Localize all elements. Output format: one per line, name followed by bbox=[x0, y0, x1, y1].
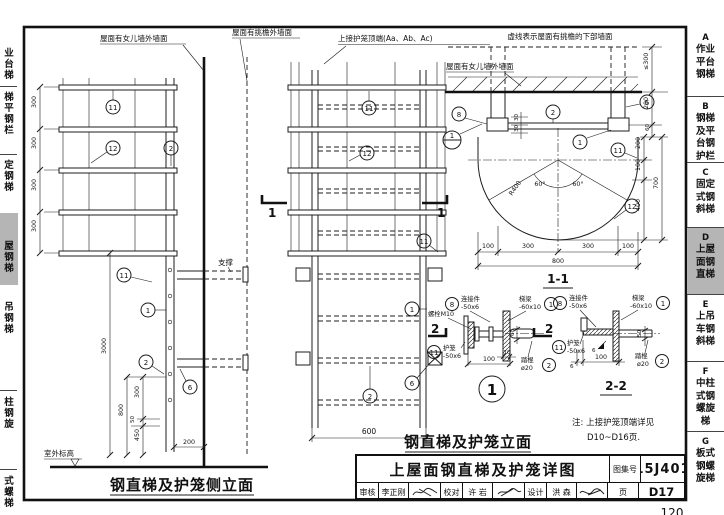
drawing-title: 上屋面钢直梯及护笼详图 bbox=[357, 456, 610, 482]
callout-11: 11 bbox=[365, 105, 374, 113]
cage-label: 护笼 bbox=[567, 338, 580, 347]
right-tab-strip: A 作业 平台 钢梯 B 钢梯 及平 台钢 护栏 C 固定 式钢 斜梯 D 上屋… bbox=[687, 28, 724, 498]
dim-100: 100 bbox=[622, 243, 634, 250]
rung-size: ø20 bbox=[637, 361, 649, 368]
drawing-sheet: 300 300 300 300 3000 800 300 50 450 200 … bbox=[0, 0, 724, 515]
callout-2: 2 bbox=[169, 145, 173, 153]
dim-50: 50 bbox=[637, 329, 643, 337]
dim-60: 60 bbox=[510, 328, 516, 336]
dim-10: 10 bbox=[503, 350, 511, 356]
proof-signature bbox=[493, 483, 525, 501]
support-label: 支撑 bbox=[218, 257, 233, 267]
proof-name: 许 岩 bbox=[463, 483, 493, 501]
design-signature bbox=[577, 483, 608, 501]
tab-label: 板式 钢螺 旋梯 bbox=[687, 448, 724, 486]
callout-11: 11 bbox=[555, 344, 564, 352]
dim-300: 300 bbox=[31, 96, 38, 108]
radius-r400: R400 bbox=[508, 180, 523, 197]
callout-1: 1 bbox=[661, 300, 665, 308]
tab-b-ladder-railing[interactable]: B 钢梯 及平 台钢 护栏 bbox=[687, 97, 724, 163]
cage-size: -50x6 bbox=[567, 348, 585, 355]
note-line-2: D10~D16页. bbox=[587, 433, 640, 443]
callout-1: 1 bbox=[146, 307, 150, 315]
dim-400: 400 bbox=[635, 199, 642, 211]
left-tab-g[interactable]: 式 螺 梯 bbox=[1, 476, 17, 509]
callout-12: 12 bbox=[109, 145, 118, 153]
dim-300: 300 bbox=[522, 243, 534, 250]
beam-label: 梯梁 bbox=[632, 293, 645, 302]
border-frame bbox=[24, 27, 686, 500]
callout-bubbles: 11 12 11 1 2 6 bbox=[349, 91, 438, 403]
tab-letter: G bbox=[687, 437, 724, 448]
parapet-wall-label: 屋面有女儿墙外墙面 bbox=[446, 61, 514, 71]
height-dims: 3000 800 300 50 450 200 bbox=[101, 250, 207, 458]
dim-30: 30 bbox=[514, 124, 520, 132]
dashed-wall-note: 虚线表示屋面有挑檐的下部墙面 bbox=[508, 31, 613, 41]
plan-right-dims: ≤300 200 60 200 100 400 700 bbox=[560, 44, 668, 243]
dim-450: 450 bbox=[134, 429, 141, 441]
callout-11: 11 bbox=[430, 349, 439, 357]
dim-100: 100 bbox=[635, 159, 642, 171]
connector-label: 连接件 bbox=[461, 294, 480, 303]
left-tab-d[interactable]: 屋 钢 梯 bbox=[1, 241, 17, 274]
detail-2-2-view: 6 8 连接件 -50x6 梯梁 -60x10 1 11 护笼 -50x6 踏棍… bbox=[553, 293, 670, 395]
angle-60: 60° bbox=[572, 180, 583, 188]
proof-label: 校对 bbox=[441, 483, 463, 501]
beam-size: -60x10 bbox=[630, 303, 652, 310]
tab-label: 上屋 面钢 直梯 bbox=[687, 244, 724, 282]
design-name: 洪 森 bbox=[547, 483, 577, 501]
support-bracket bbox=[177, 267, 248, 370]
signature-icon bbox=[411, 486, 439, 498]
dim-le300: ≤300 bbox=[643, 53, 650, 70]
dim-300: 300 bbox=[31, 220, 38, 232]
dim-700: 700 bbox=[653, 177, 660, 189]
dim-100: 100 bbox=[483, 356, 495, 363]
dim-30: 30 bbox=[514, 113, 520, 121]
tab-letter: D bbox=[687, 233, 724, 244]
section-mark-label: 2 bbox=[431, 322, 439, 336]
tab-label: 上吊 车钢 斜梯 bbox=[687, 311, 724, 349]
rung-label: 踏棍 bbox=[521, 355, 534, 364]
check-signature bbox=[409, 483, 441, 501]
section-mark-label: 1 bbox=[437, 206, 445, 220]
callout-2: 2 bbox=[368, 393, 372, 401]
drawing-canvas: 300 300 300 300 3000 800 300 50 450 200 … bbox=[0, 0, 724, 515]
tab-letter: B bbox=[687, 102, 724, 113]
dim-200: 200 bbox=[635, 137, 642, 149]
atlas-number-label: 图集号 bbox=[610, 456, 641, 482]
dim-300: 300 bbox=[582, 243, 594, 250]
callout-2: 2 bbox=[547, 362, 551, 370]
connector-size: -50x6 bbox=[461, 304, 479, 311]
tab-letter: E bbox=[687, 300, 724, 311]
detail-1-reference: 1 bbox=[443, 124, 482, 149]
level-triangle-icon bbox=[71, 459, 79, 466]
callout-1: 1 bbox=[549, 301, 553, 309]
callout-2: 2 bbox=[551, 109, 555, 117]
callout-11: 11 bbox=[120, 272, 129, 280]
callout-11: 11 bbox=[109, 104, 118, 112]
tab-label: 中柱 式钢 螺旋 梯 bbox=[687, 378, 724, 428]
tab-c-fixed-steel-stair[interactable]: C 固定 式钢 斜梯 bbox=[687, 163, 724, 228]
wall-hatch bbox=[445, 77, 642, 92]
beam-offset-dims: 30 30 bbox=[511, 112, 528, 139]
dim-300: 300 bbox=[31, 137, 38, 149]
callout-2: 2 bbox=[660, 358, 664, 366]
design-label: 设计 bbox=[525, 483, 547, 501]
tab-label: 钢梯 及平 台钢 护栏 bbox=[687, 113, 724, 163]
side-elevation-title: 钢直梯及护笼侧立面 bbox=[110, 476, 254, 494]
callout-8: 8 bbox=[558, 300, 562, 308]
left-tab-a[interactable]: 业 台 梯 bbox=[1, 48, 17, 81]
left-tab-strip: 业 台 梯 梯 平 钢 栏 定 钢 梯 屋 钢 梯 吊 钢 梯 柱 钢 旋 式 … bbox=[0, 0, 18, 515]
section-mark-1: 1 1 bbox=[262, 195, 447, 220]
detail-1-number: 1 bbox=[487, 381, 497, 399]
tab-e-crane-steel-stair[interactable]: E 上吊 车钢 斜梯 bbox=[687, 295, 724, 362]
dim-50: 50 bbox=[130, 415, 136, 423]
page-number-value: D17 bbox=[639, 483, 684, 501]
page-label: 页 bbox=[608, 483, 639, 501]
hoop-spacing-dims: 300 300 300 300 bbox=[31, 84, 59, 256]
callout-2: 2 bbox=[144, 359, 148, 367]
rung-size: ø20 bbox=[521, 365, 533, 372]
tab-label: 作业 平台 钢梯 bbox=[687, 44, 724, 82]
dim-3000: 3000 bbox=[101, 338, 108, 354]
tab-label: 固定 式钢 斜梯 bbox=[687, 179, 724, 217]
dim-800: 800 bbox=[118, 404, 125, 416]
detail-2-2-title: 2-2 bbox=[605, 379, 627, 393]
callout-6: 6 bbox=[410, 380, 415, 388]
dim-200: 200 bbox=[183, 439, 195, 446]
dim-6: 6 bbox=[570, 364, 574, 370]
cage-size: -50x6 bbox=[443, 353, 461, 360]
signature-icon bbox=[578, 486, 606, 498]
outdoor-level-label: 室外标高 bbox=[44, 448, 74, 458]
left-tab-f[interactable]: 柱 钢 旋 bbox=[1, 397, 17, 430]
plan-view-1-1: 虚线表示屋面有挑檐的下部墙面 屋面有女儿墙外墙面 30 30 bbox=[443, 31, 668, 288]
callout-11: 11 bbox=[614, 147, 623, 155]
beam-label: 梯梁 bbox=[519, 294, 532, 303]
cage-top-label: 上接护笼顶端(Aa、Ab、Ac) bbox=[338, 33, 433, 43]
detail-1-view: 2 2 螺栓M10 8 连接件 -50x6 梯梁 -60x10 1 11 护笼 … bbox=[428, 294, 558, 402]
plan-title: 1-1 bbox=[547, 272, 569, 286]
dim-200: 200 bbox=[643, 97, 650, 109]
beam-size: -60x10 bbox=[519, 304, 541, 311]
tab-f-center-column-spiral[interactable]: F 中柱 式钢 螺旋 梯 bbox=[687, 362, 724, 432]
callout-6: 6 bbox=[188, 384, 193, 392]
cage-label: 护笼 bbox=[443, 343, 456, 352]
tab-a-work-platform-ladder[interactable]: A 作业 平台 钢梯 bbox=[687, 28, 724, 97]
callout-bubbles: 8 2 6 1 11 12 bbox=[452, 95, 654, 219]
left-tab-e[interactable]: 吊 钢 梯 bbox=[1, 302, 17, 335]
check-name: 李正刚 bbox=[379, 483, 409, 501]
section-mark-label: 1 bbox=[268, 206, 276, 220]
tab-letter: C bbox=[687, 168, 724, 179]
callout-12: 12 bbox=[363, 150, 372, 158]
left-tab-c[interactable]: 定 钢 梯 bbox=[1, 160, 17, 193]
connector-label: 连接件 bbox=[569, 293, 588, 302]
dim-300: 300 bbox=[134, 386, 141, 398]
detail-ref-number: 1 bbox=[450, 132, 454, 140]
tab-d-roof-vertical-ladder[interactable]: D 上屋 面钢 直梯 bbox=[687, 228, 724, 295]
check-label: 审核 bbox=[357, 483, 379, 501]
dim-600: 600 bbox=[362, 427, 377, 436]
angle-60: 60° bbox=[534, 180, 545, 188]
title-block: 上屋面钢直梯及护笼详图 图集号 15J401 审核 李正刚 校对 许 岩 设计 … bbox=[355, 454, 686, 500]
dim-800: 800 bbox=[552, 258, 564, 265]
callout-1: 1 bbox=[578, 139, 582, 147]
dim-60: 60 bbox=[645, 123, 651, 131]
connector-size: -50x6 bbox=[569, 303, 587, 310]
callout-8: 8 bbox=[457, 111, 461, 119]
atlas-number-value: 15J401 bbox=[641, 456, 684, 482]
tab-letter: F bbox=[687, 367, 724, 378]
dim-100: 100 bbox=[482, 243, 494, 250]
tab-g-plate-spiral-ladder[interactable]: G 板式 钢螺 旋梯 bbox=[687, 432, 724, 492]
tab-letter: A bbox=[687, 33, 724, 44]
section-mark-label: 2 bbox=[545, 322, 553, 336]
parapet-wall-label: 屋面有女儿墙外墙面 bbox=[100, 33, 168, 43]
footer-page-number: 120 bbox=[650, 506, 694, 515]
signature-icon bbox=[495, 486, 523, 498]
dim-300: 300 bbox=[31, 179, 38, 191]
callout-11: 11 bbox=[420, 238, 429, 246]
eave-wall-label: 屋面有挑檐外墙面 bbox=[232, 27, 292, 37]
callout-1: 1 bbox=[410, 306, 414, 314]
callout-8: 8 bbox=[450, 301, 454, 309]
side-elevation-view: 300 300 300 300 3000 800 300 50 450 200 … bbox=[31, 27, 300, 495]
note-line-1: 注: 上接护笼顶端详见 bbox=[572, 417, 655, 428]
rung-label: 踏棍 bbox=[635, 351, 648, 360]
left-tab-b[interactable]: 梯 平 钢 栏 bbox=[1, 92, 17, 136]
dim-100: 100 bbox=[595, 354, 607, 361]
front-elevation-title: 钢直梯及护笼立面 bbox=[404, 433, 532, 451]
